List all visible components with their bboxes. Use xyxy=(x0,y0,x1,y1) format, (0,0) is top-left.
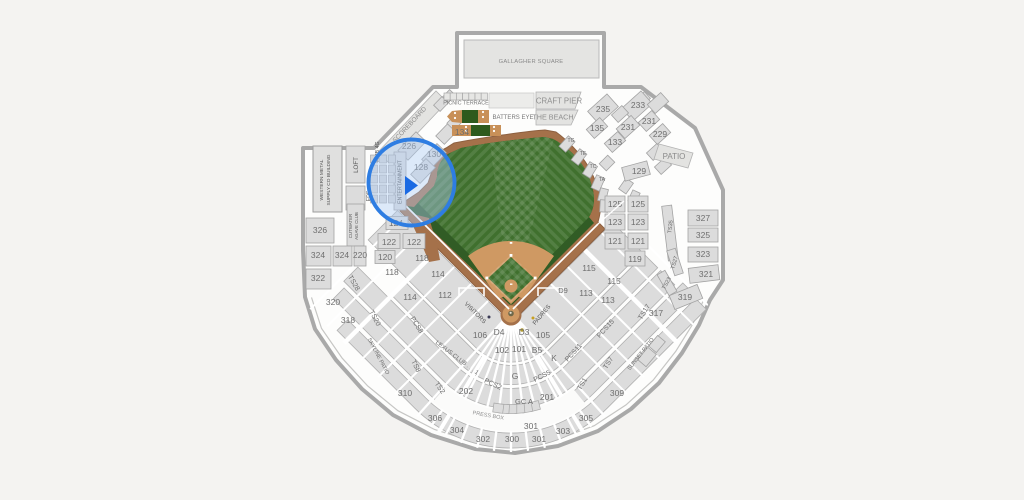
svg-text:122: 122 xyxy=(407,237,421,247)
svg-text:SUPPLY CO BUILDING: SUPPLY CO BUILDING xyxy=(326,154,332,205)
svg-text:101: 101 xyxy=(512,344,526,354)
svg-text:318: 318 xyxy=(341,315,355,325)
svg-text:114: 114 xyxy=(403,292,417,302)
svg-text:118: 118 xyxy=(415,253,429,263)
svg-text:B5: B5 xyxy=(532,345,543,355)
svg-text:112: 112 xyxy=(438,290,452,300)
svg-text:306: 306 xyxy=(428,413,442,423)
svg-text:D9: D9 xyxy=(558,286,568,295)
svg-text:TE: TE xyxy=(580,151,587,157)
svg-text:233: 233 xyxy=(631,100,645,110)
svg-text:113: 113 xyxy=(601,295,615,305)
svg-text:WESTERN METAL: WESTERN METAL xyxy=(319,159,325,200)
svg-text:319: 319 xyxy=(678,292,692,302)
svg-text:G: G xyxy=(512,371,519,381)
svg-text:115: 115 xyxy=(582,263,596,273)
svg-text:TA: TA xyxy=(599,177,606,183)
svg-text:PATIO: PATIO xyxy=(663,152,686,161)
svg-text:PICNIC TERRACE: PICNIC TERRACE xyxy=(443,101,489,107)
svg-text:123: 123 xyxy=(608,217,622,227)
svg-text:118: 118 xyxy=(385,267,399,277)
svg-text:323: 323 xyxy=(696,249,710,259)
svg-text:326: 326 xyxy=(313,225,327,235)
svg-text:310: 310 xyxy=(398,388,412,398)
svg-text:303: 303 xyxy=(556,426,570,436)
svg-text:135: 135 xyxy=(590,123,604,133)
svg-text:129: 129 xyxy=(632,166,646,176)
svg-text:106: 106 xyxy=(473,330,487,340)
svg-text:322: 322 xyxy=(311,273,325,283)
svg-text:102: 102 xyxy=(495,345,509,355)
svg-text:317: 317 xyxy=(649,308,663,318)
svg-text:300: 300 xyxy=(505,434,519,444)
svg-text:220: 220 xyxy=(353,250,367,260)
svg-text:134: 134 xyxy=(455,127,469,137)
svg-text:231: 231 xyxy=(621,122,635,132)
svg-text:235: 235 xyxy=(596,104,610,114)
svg-text:309: 309 xyxy=(610,388,624,398)
svg-text:202: 202 xyxy=(459,386,473,396)
svg-text:320: 320 xyxy=(326,297,340,307)
svg-text:LOFT: LOFT xyxy=(353,157,360,173)
svg-text:133: 133 xyxy=(608,137,622,147)
svg-text:324: 324 xyxy=(335,250,349,260)
svg-text:105: 105 xyxy=(536,330,550,340)
svg-text:123: 123 xyxy=(631,217,645,227)
svg-text:120: 120 xyxy=(378,252,392,262)
svg-text:BATTERS EYE: BATTERS EYE xyxy=(493,115,534,121)
svg-text:CUTWATER: CUTWATER xyxy=(348,214,353,238)
svg-text:AGAVE CLUB: AGAVE CLUB xyxy=(354,212,359,240)
svg-text:D3: D3 xyxy=(519,327,530,337)
svg-text:113: 113 xyxy=(579,288,593,298)
svg-text:231: 231 xyxy=(642,116,656,126)
svg-text:D4: D4 xyxy=(494,327,505,337)
svg-text:201: 201 xyxy=(540,392,554,402)
svg-text:119: 119 xyxy=(628,254,642,264)
svg-text:TC: TC xyxy=(590,164,597,170)
svg-text:325: 325 xyxy=(696,230,710,240)
svg-text:125: 125 xyxy=(631,199,645,209)
svg-text:GC A: GC A xyxy=(515,397,533,406)
svg-text:TG: TG xyxy=(568,138,575,144)
svg-text:302: 302 xyxy=(476,434,490,444)
svg-text:301: 301 xyxy=(532,434,546,444)
svg-text:115: 115 xyxy=(607,276,621,286)
svg-text:THE BEACH: THE BEACH xyxy=(532,113,573,122)
svg-text:304: 304 xyxy=(450,425,464,435)
svg-text:305: 305 xyxy=(579,413,593,423)
svg-text:122: 122 xyxy=(382,237,396,247)
svg-text:GALLAGHER SQUARE: GALLAGHER SQUARE xyxy=(499,59,564,65)
svg-text:321: 321 xyxy=(699,269,713,279)
svg-text:114: 114 xyxy=(431,269,445,279)
svg-text:K: K xyxy=(551,353,557,363)
svg-text:121: 121 xyxy=(631,236,645,246)
svg-text:CRAFT PIER: CRAFT PIER xyxy=(536,97,583,106)
svg-text:327: 327 xyxy=(696,213,710,223)
svg-text:229: 229 xyxy=(653,129,667,139)
svg-text:324: 324 xyxy=(311,250,325,260)
svg-text:121: 121 xyxy=(608,236,622,246)
svg-text:301: 301 xyxy=(524,421,538,431)
